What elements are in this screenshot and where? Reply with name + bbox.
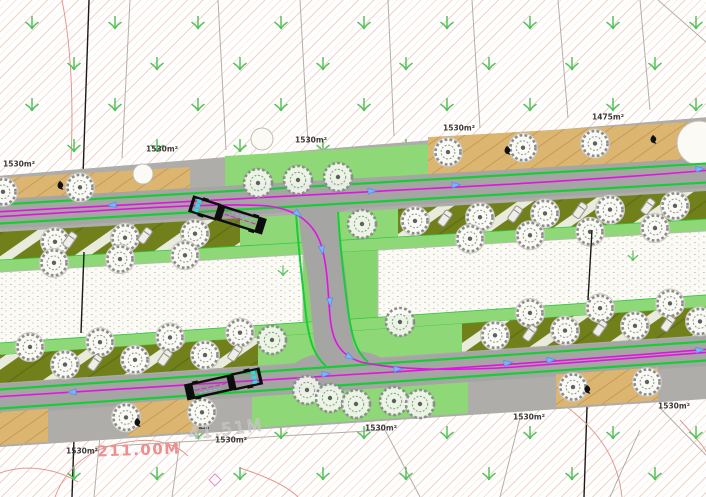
site-plan-drawing <box>0 0 706 497</box>
tree-symbol <box>108 247 133 272</box>
tree-symbol <box>348 210 376 238</box>
tree-symbol <box>88 330 113 355</box>
tree-symbol <box>228 320 253 345</box>
tree-symbol <box>553 318 578 343</box>
tree-symbol <box>18 334 43 359</box>
tree-symbol <box>643 216 668 241</box>
site-plan-canvas[interactable]: 211.00M 41.51M 1530m²1530m²1530m²1530m²1… <box>0 0 706 497</box>
tree-symbol <box>518 223 543 248</box>
tree-symbol <box>518 300 543 325</box>
tree-symbol <box>380 387 408 415</box>
tree-symbol <box>244 169 272 197</box>
survey-diamond-icon <box>209 474 221 486</box>
tree-symbol <box>342 390 370 418</box>
tree-symbol <box>583 131 608 156</box>
tree-symbol <box>483 323 508 348</box>
tree-symbol <box>258 326 286 354</box>
tree-symbol <box>68 175 93 200</box>
tree-symbol <box>436 140 461 165</box>
tree-symbol <box>316 384 344 412</box>
tree-symbol <box>561 375 586 400</box>
tree-symbol <box>190 400 215 425</box>
tree-symbol <box>324 163 352 191</box>
tree-symbol <box>658 291 683 316</box>
tree-symbol <box>406 390 434 418</box>
tree-symbol <box>386 308 414 336</box>
tree-symbol <box>123 347 148 372</box>
tree-symbol <box>114 405 139 430</box>
tree-symbol <box>623 313 648 338</box>
tree-symbol <box>42 250 67 275</box>
tree-symbol <box>578 219 603 244</box>
tree-symbol <box>403 208 428 233</box>
tree-symbol <box>511 135 536 160</box>
tree-symbol <box>588 296 613 321</box>
tree-symbol <box>193 343 218 368</box>
tree-symbol <box>635 370 660 395</box>
tree-symbol <box>598 197 623 222</box>
tree-symbol <box>158 325 183 350</box>
tree-symbol <box>53 352 78 377</box>
tree-symbol <box>458 226 483 251</box>
tree-symbol <box>173 243 198 268</box>
tree-symbol <box>663 193 688 218</box>
tree-symbol <box>284 166 312 194</box>
